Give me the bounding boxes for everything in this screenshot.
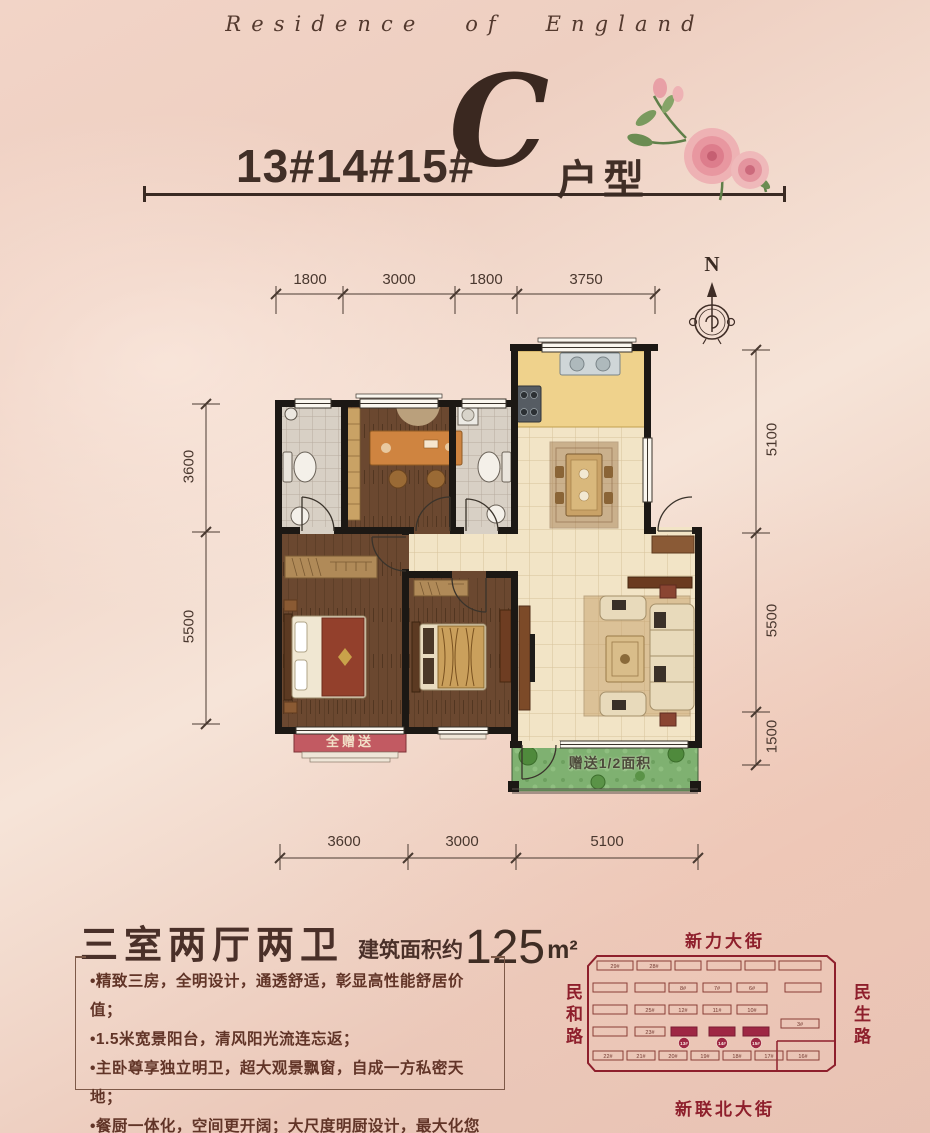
dim-top-2: 3000 bbox=[369, 271, 429, 288]
dim-bottom-3: 5100 bbox=[577, 833, 637, 850]
building bbox=[671, 1027, 697, 1036]
building bbox=[593, 983, 627, 992]
svg-text:15#: 15# bbox=[752, 1041, 760, 1046]
rose-image bbox=[616, 78, 776, 204]
title-underline-tick-right bbox=[783, 186, 786, 202]
building bbox=[707, 961, 741, 970]
svg-text:13#: 13# bbox=[680, 1041, 688, 1046]
feature-item: •主卧尊享独立明卫，超大观景飘窗，自成一方私密天地； bbox=[90, 1054, 490, 1112]
building bbox=[593, 1005, 627, 1014]
dim-top-3: 1800 bbox=[456, 271, 516, 288]
svg-text:23#: 23# bbox=[645, 1030, 655, 1036]
balcony-gift-label: 赠送1/2面积 bbox=[548, 753, 672, 773]
svg-text:21#: 21# bbox=[636, 1054, 646, 1060]
svg-text:20#: 20# bbox=[668, 1054, 678, 1060]
north-compass-icon bbox=[690, 282, 735, 344]
site-map: 新力大街 民和路 民生路 新联北大街 29#28#8#7#6#25#12#11#… bbox=[560, 925, 890, 1125]
dim-left-1: 3600 bbox=[181, 437, 198, 497]
svg-text:22#: 22# bbox=[603, 1054, 613, 1060]
building bbox=[593, 1027, 627, 1036]
dim-right-3: 1500 bbox=[764, 707, 781, 767]
building bbox=[635, 983, 665, 992]
svg-text:14#: 14# bbox=[718, 1041, 726, 1046]
dim-top-4: 3750 bbox=[556, 271, 616, 288]
svg-text:7#: 7# bbox=[714, 986, 721, 992]
svg-text:25#: 25# bbox=[645, 1008, 655, 1014]
svg-text:11#: 11# bbox=[713, 1008, 723, 1014]
feature-item: •精致三房，全明设计，通透舒适，彰显高性能舒居价值； bbox=[90, 967, 490, 1025]
street-bottom-label: 新联北大街 bbox=[560, 1095, 890, 1120]
feature-item: •1.5米宽景阳台，清风阳光流连忘返； bbox=[90, 1025, 490, 1054]
building bbox=[709, 1027, 735, 1036]
features-box-border-left bbox=[76, 956, 86, 958]
svg-text:8#: 8# bbox=[680, 986, 687, 992]
svg-text:17#: 17# bbox=[764, 1054, 774, 1060]
svg-text:12#: 12# bbox=[678, 1008, 688, 1014]
building bbox=[743, 1027, 769, 1036]
street-left-label: 民和路 bbox=[560, 983, 585, 1049]
dim-top-1: 1800 bbox=[280, 271, 340, 288]
svg-text:19#: 19# bbox=[700, 1054, 710, 1060]
svg-text:29#: 29# bbox=[610, 964, 620, 970]
floor-plan bbox=[170, 250, 790, 880]
svg-text:6#: 6# bbox=[749, 986, 756, 992]
svg-text:18#: 18# bbox=[732, 1054, 742, 1060]
dim-right-1: 5100 bbox=[764, 410, 781, 470]
svg-text:16#: 16# bbox=[798, 1054, 808, 1060]
dim-bottom-2: 3000 bbox=[432, 833, 492, 850]
building bbox=[675, 961, 701, 970]
svg-text:28#: 28# bbox=[649, 964, 659, 970]
features-box: •精致三房，全明设计，通透舒适，彰显高性能舒居价值； •1.5米宽景阳台，清风阳… bbox=[75, 956, 505, 1090]
dim-right-2: 5500 bbox=[764, 591, 781, 651]
feature-item: •餐厨一体化，空间更开阔；大尺度明厨设计，最大化您的生活享受。 bbox=[90, 1112, 490, 1133]
site-map-plan: 29#28#8#7#6#25#12#11#10#3#23#13#14#15#22… bbox=[585, 953, 865, 1083]
svg-text:3#: 3# bbox=[797, 1022, 804, 1028]
dim-left-2: 5500 bbox=[181, 597, 198, 657]
street-top-label: 新力大街 bbox=[560, 927, 890, 952]
master-bay-gift-label: 全赠送 bbox=[305, 731, 395, 750]
building bbox=[785, 983, 821, 992]
building bbox=[745, 961, 775, 970]
title-underline-tick-left bbox=[143, 186, 146, 202]
building bbox=[779, 961, 821, 970]
building-numbers-title: 13#14#15# bbox=[236, 139, 475, 193]
features-box-border-right bbox=[491, 956, 504, 958]
buildings-layer: 29#28#8#7#6#25#12#11#10#3#23#13#14#15#22… bbox=[593, 961, 821, 1060]
dim-bottom-1: 3600 bbox=[314, 833, 374, 850]
brand-header: Residence of England bbox=[0, 12, 930, 36]
brochure-page: Residence of England 13#14#15# C 户型 N bbox=[0, 0, 930, 1133]
unit-letter: C bbox=[449, 58, 549, 184]
svg-text:10#: 10# bbox=[747, 1008, 757, 1014]
